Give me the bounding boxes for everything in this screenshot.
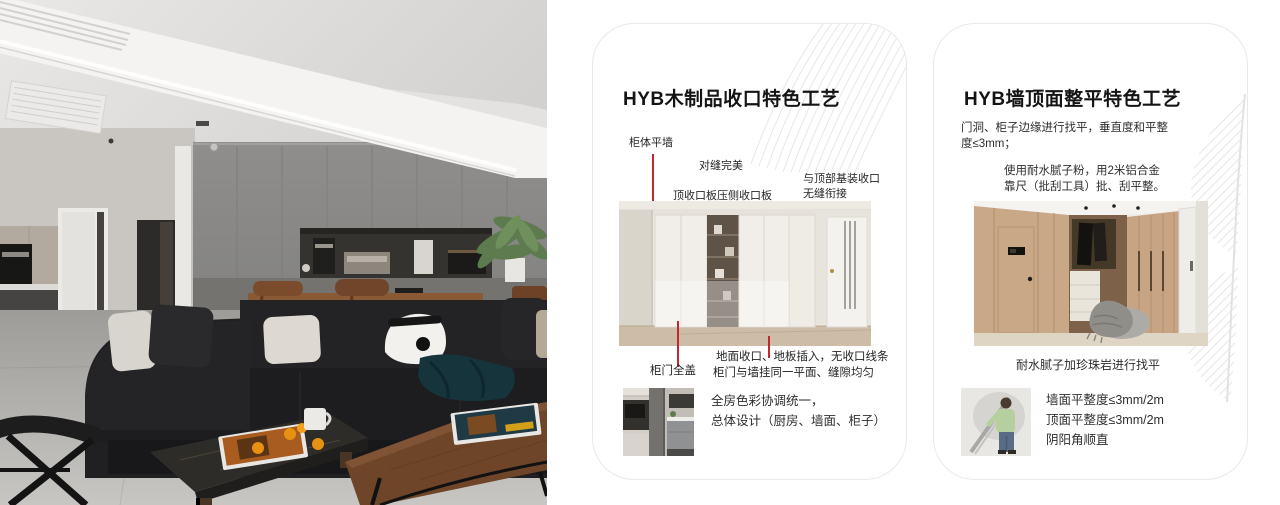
- label-top-connection: 与顶部基装收口 无缝衔接: [803, 172, 880, 202]
- summary-line-2: 总体设计（厨房、墙面、柜子）: [711, 413, 886, 429]
- living-room-photo: [0, 0, 547, 505]
- card-wood-finishing: HYB木制品收口特色工艺 柜体平墙 对缝完美 顶收口板压侧收口板 与顶部基装收口…: [592, 23, 907, 480]
- spec-ceiling-flatness: 顶面平整度≤3mm/2m: [1046, 410, 1164, 430]
- leader-line-3: [677, 321, 679, 367]
- paragraph-2: 使用耐水腻子粉，用2米铝合金 靠尺（批刮工具）批、刮平整。: [1004, 163, 1165, 195]
- card-wall-leveling: HYB墙顶面整平特色工艺 门洞、柜子边缘进行找平，垂直度和平整 度≤3mm； 使…: [933, 23, 1248, 480]
- closet-image: [974, 201, 1208, 346]
- label-cabinet-flush-wall: 柜体平墙: [629, 136, 673, 151]
- card2-title: HYB墙顶面整平特色工艺: [964, 84, 1181, 111]
- image-caption: 耐水腻子加珍珠岩进行找平: [1016, 357, 1160, 373]
- paragraph-1: 门洞、柜子边缘进行找平，垂直度和平整 度≤3mm；: [961, 120, 1168, 152]
- card1-title: HYB木制品收口特色工艺: [623, 84, 840, 111]
- worker-thumbnail: [961, 388, 1031, 456]
- wardrobe-image: [619, 201, 871, 346]
- spec-wall-flatness: 墙面平整度≤3mm/2m: [1046, 390, 1164, 410]
- summary-line-1: 全房色彩协调统一，: [711, 393, 824, 409]
- label-floor-note-2: 柜门与墙挂同一平面、缝隙均匀: [713, 366, 874, 381]
- label-perfect-seam: 对缝完美: [699, 159, 743, 174]
- spec-bullets: 墙面平整度≤3mm/2m 顶面平整度≤3mm/2m 阴阳角顺直: [1046, 390, 1164, 450]
- door: [827, 217, 867, 327]
- label-full-cover-door: 柜门全盖: [650, 364, 696, 379]
- living-room-illustration: [0, 0, 547, 505]
- kitchen-thumbnail: [623, 388, 694, 456]
- label-floor-note-1: 地面收口、地板插入，无收口线条: [716, 350, 889, 365]
- spec-corners: 阴阳角顺直: [1046, 430, 1164, 450]
